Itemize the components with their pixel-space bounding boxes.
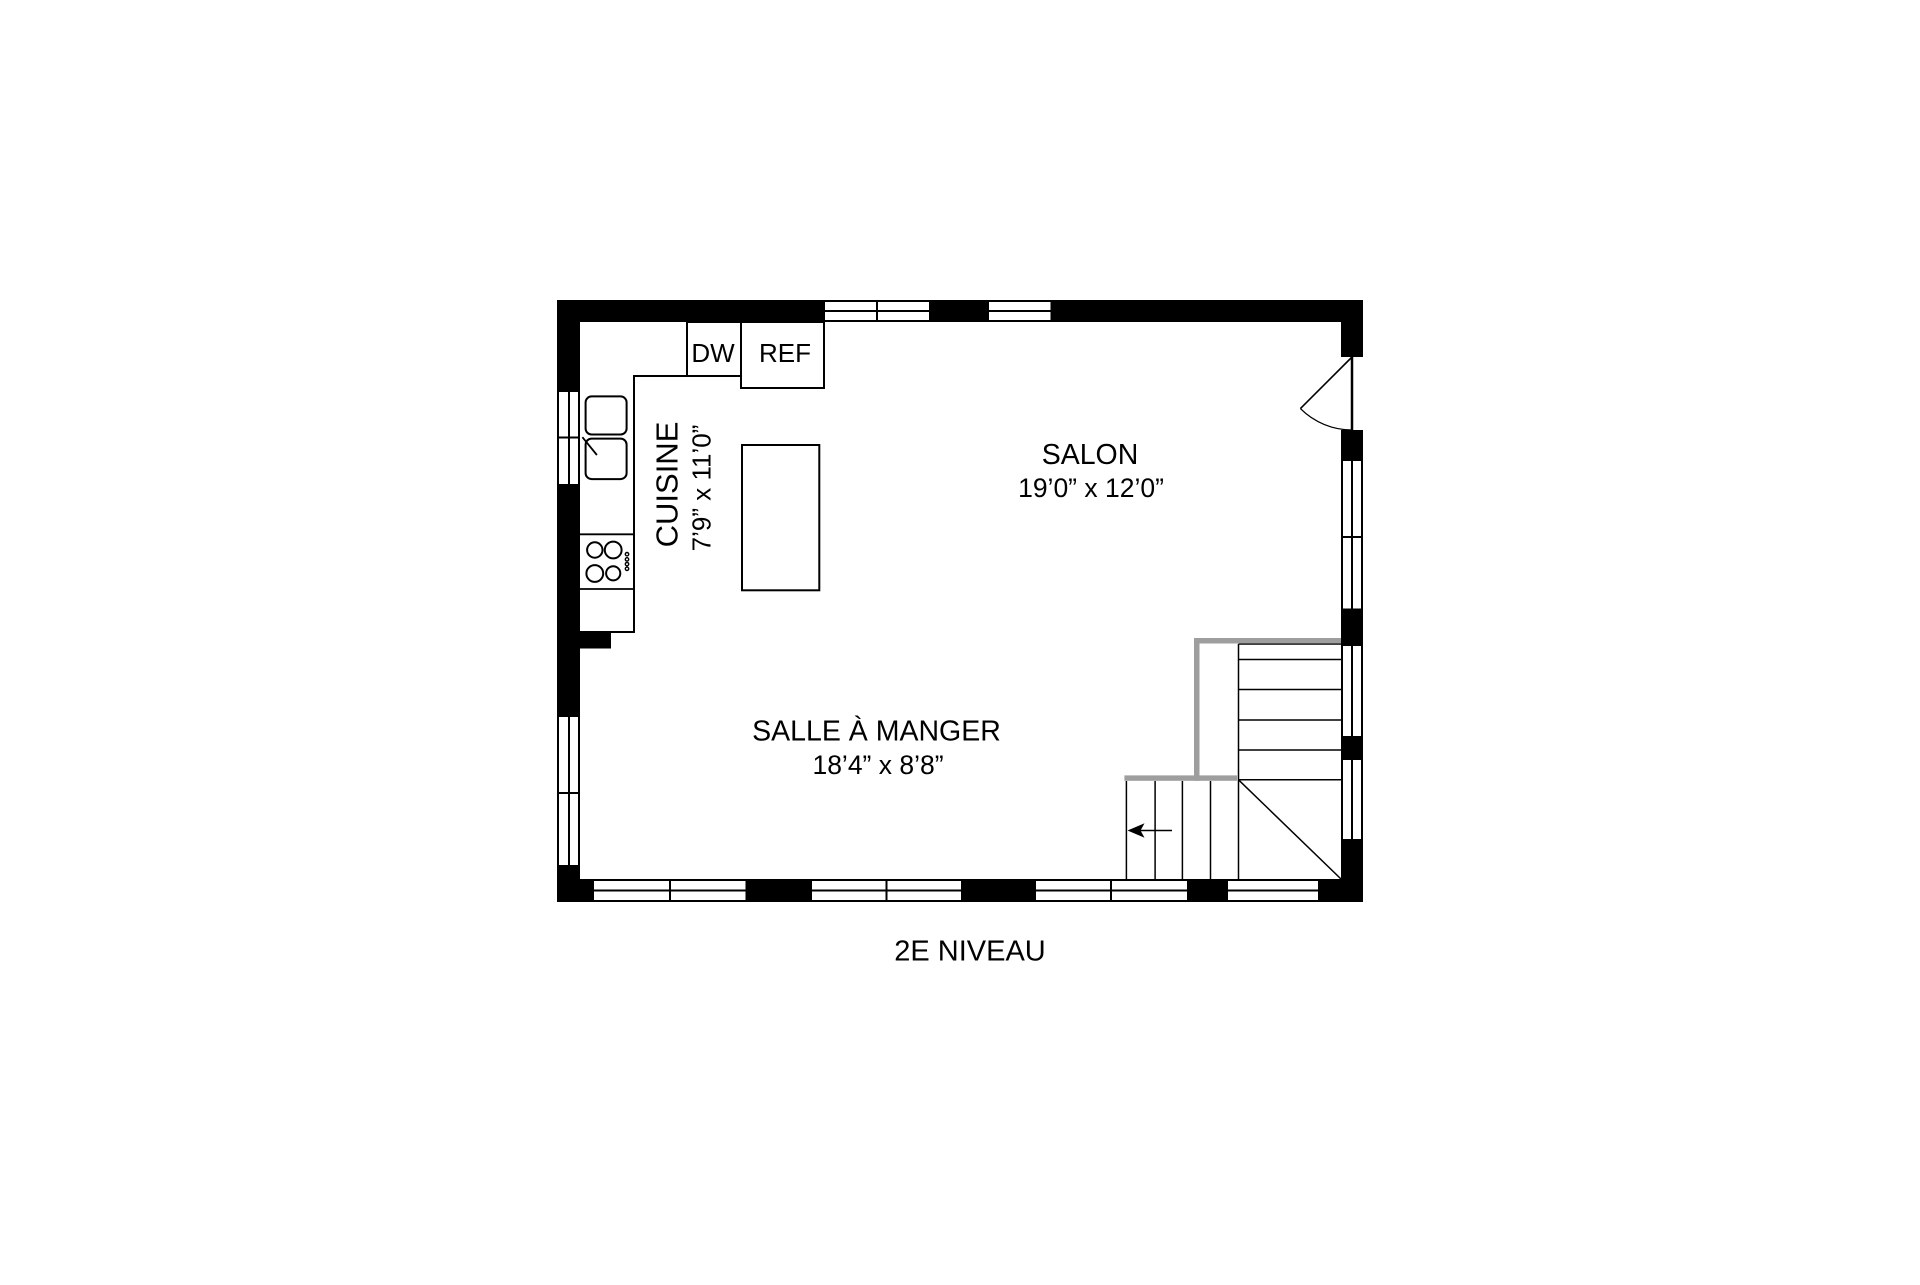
svg-text:SALON: SALON [1042,439,1139,471]
svg-text:2E NIVEAU: 2E NIVEAU [894,936,1046,968]
svg-text:19’0” x 12’0”: 19’0” x 12’0” [1018,473,1164,503]
svg-text:CUISINE: CUISINE [650,422,685,548]
svg-text:REF: REF [759,338,811,368]
svg-text:18’4” x 8’8”: 18’4” x 8’8” [812,750,943,780]
svg-text:DW: DW [691,338,735,368]
svg-text:7’9” x 11’0”: 7’9” x 11’0” [687,425,717,552]
svg-text:SALLE À MANGER: SALLE À MANGER [752,716,1001,748]
